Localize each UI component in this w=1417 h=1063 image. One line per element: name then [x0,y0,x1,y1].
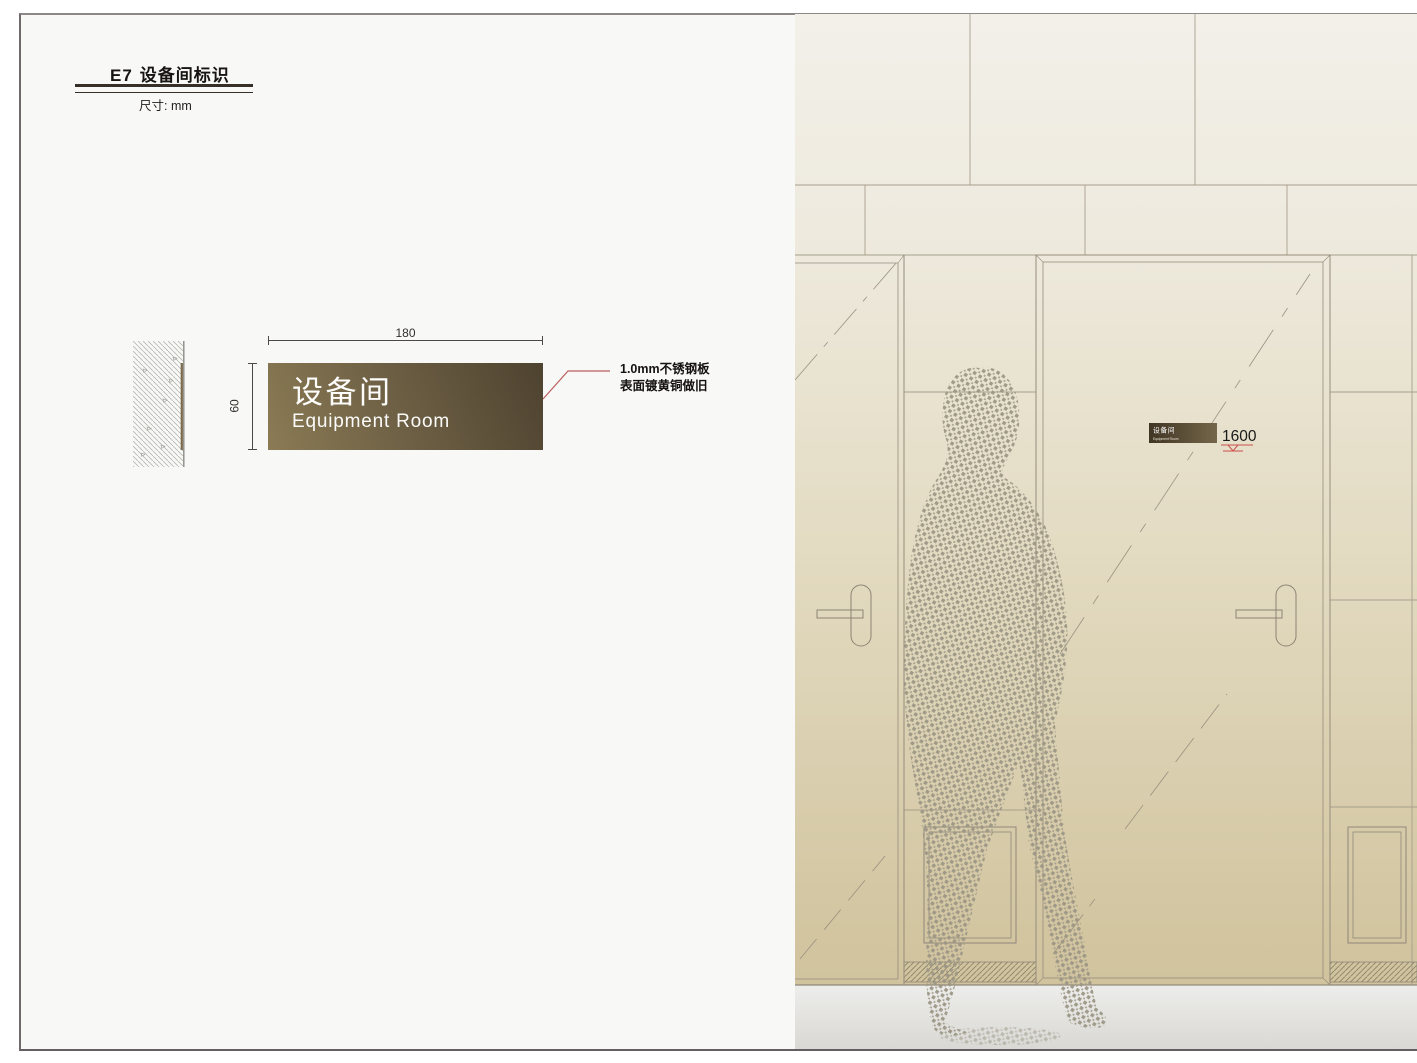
sign-chinese-text: 设备间 [292,376,543,410]
section-code: E7 [110,66,133,85]
door-sign-english: Equipment Room [1153,437,1179,441]
right-kick-plate-hatch [1330,962,1417,982]
floor [795,985,1417,1049]
height-dimension-label: 60 [228,399,242,412]
wall-background [795,14,1417,985]
material-note: 1.0mm不锈钢板 表面镀黄铜做旧 [620,361,710,395]
figure-shadow [938,1027,1062,1045]
material-note-line1: 1.0mm不锈钢板 [620,361,710,378]
title-underline [75,84,253,93]
units-label: 尺寸: mm [139,95,192,114]
signage-spec-page: E7设备间标识 尺寸: mm 180 60 设备间 Equipment Room [0,0,1417,1063]
material-note-line2: 表面镀黄铜做旧 [620,378,710,395]
height-dimension-line [252,363,253,450]
mounting-height-value: 1600 [1222,428,1257,445]
sign-english-text: Equipment Room [292,411,543,432]
elevation-rendering: 设备间 Equipment Room 1600 [795,14,1417,1049]
section-title-text: 设备间标识 [140,66,230,85]
kick-plate-hatch [904,962,1036,982]
door-sign-chinese: 设备间 [1153,426,1175,435]
width-dimension-line [268,340,543,341]
sign-plate-mockup: 设备间 Equipment Room [268,363,543,450]
width-dimension-label: 180 [268,326,543,340]
page-title: E7设备间标识 [110,61,230,86]
wall-section-drawing [133,341,185,467]
material-leader-line [543,360,623,404]
wall-hatch [133,341,183,467]
